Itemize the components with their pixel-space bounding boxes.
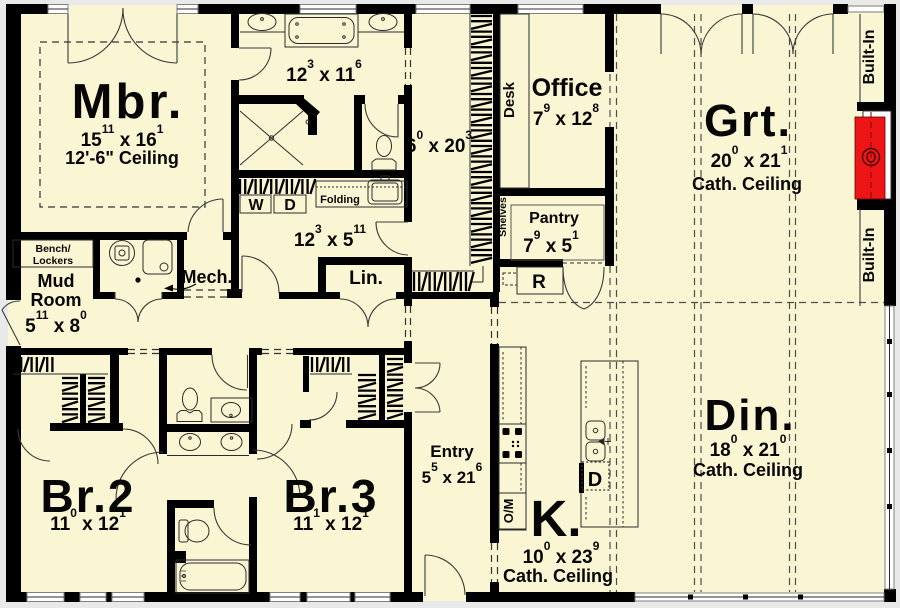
svg-text:Grt.: Grt. [704,95,792,146]
svg-text:Lin.: Lin. [349,268,383,289]
svg-text:12'-6" Ceiling: 12'-6" Ceiling [65,148,179,168]
svg-text:Cath. Ceiling: Cath. Ceiling [692,174,802,194]
svg-text:O/M: O/M [501,499,516,524]
svg-text:R: R [532,272,546,293]
svg-text:D: D [284,197,296,214]
svg-text:D: D [588,469,602,491]
svg-text:Lockers: Lockers [33,255,73,267]
svg-text:Bench/: Bench/ [35,243,70,255]
svg-text:W: W [248,197,264,214]
svg-text:Shelves: Shelves [497,197,509,237]
svg-text:Mbr.: Mbr. [72,75,185,129]
svg-text:Mud: Mud [38,271,75,291]
svg-text:Folding: Folding [320,194,360,206]
svg-text:Built-In: Built-In [861,29,878,84]
svg-text:K.: K. [531,490,582,547]
svg-text:Office: Office [532,74,603,102]
svg-text:Mech.: Mech. [181,267,232,287]
svg-text:Room: Room [31,290,82,310]
svg-text:Desk: Desk [501,81,518,118]
svg-text:Pantry: Pantry [529,210,579,227]
svg-text:Entry: Entry [430,442,474,461]
svg-text:Cath. Ceiling: Cath. Ceiling [503,566,613,586]
svg-text:Built-In: Built-In [861,227,878,282]
svg-text:Cath. Ceiling: Cath. Ceiling [693,460,803,480]
